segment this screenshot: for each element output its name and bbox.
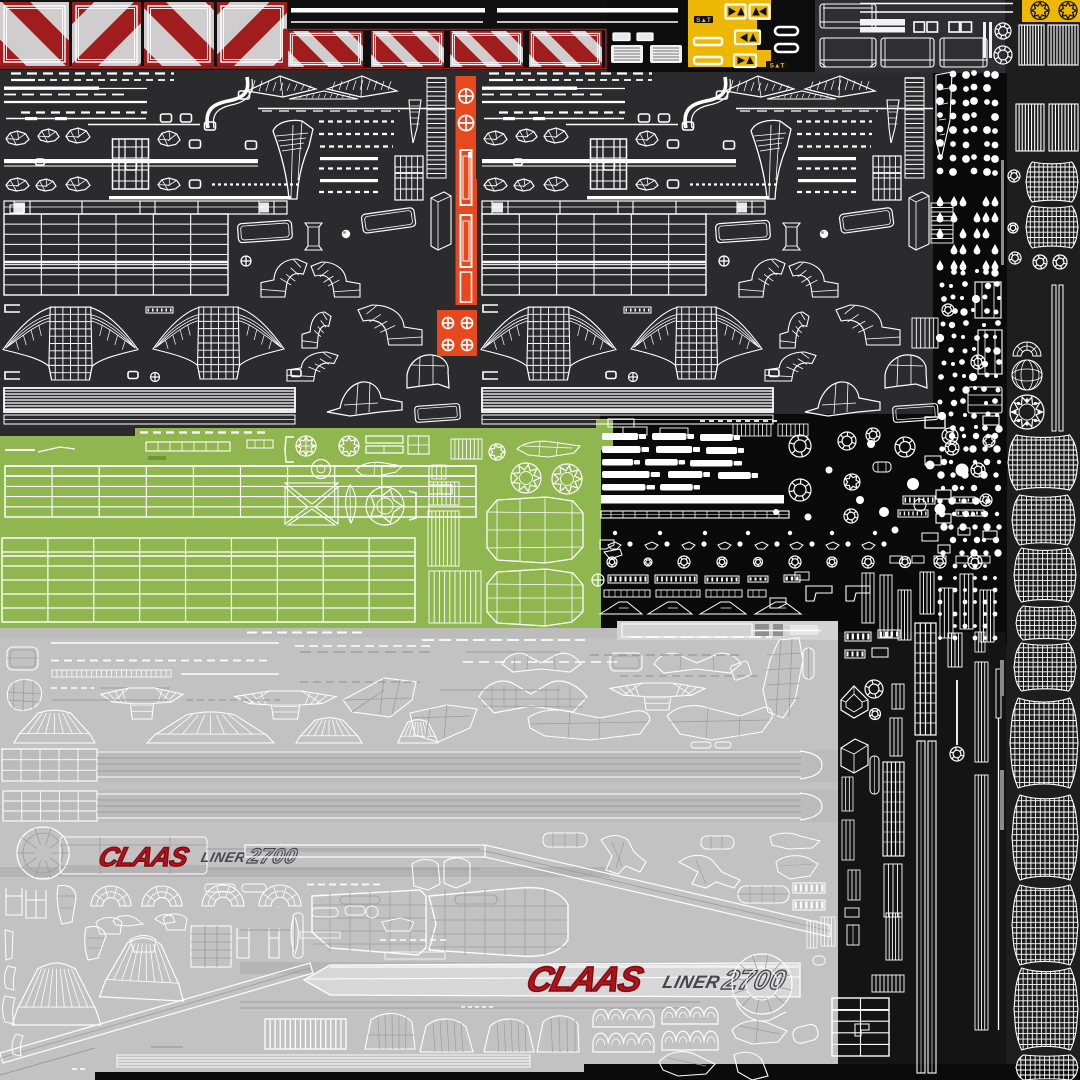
svg-text:2700: 2700 [719, 964, 790, 995]
svg-text:CLAAS: CLAAS [96, 841, 192, 872]
svg-text:S▲T: S▲T [770, 63, 785, 70]
svg-text:CLAAS: CLAAS [523, 959, 648, 998]
svg-text:S▲T: S▲T [696, 17, 711, 24]
svg-text:LINER: LINER [199, 850, 248, 866]
svg-text:LINER: LINER [661, 971, 723, 992]
svg-text:2700: 2700 [245, 844, 301, 868]
